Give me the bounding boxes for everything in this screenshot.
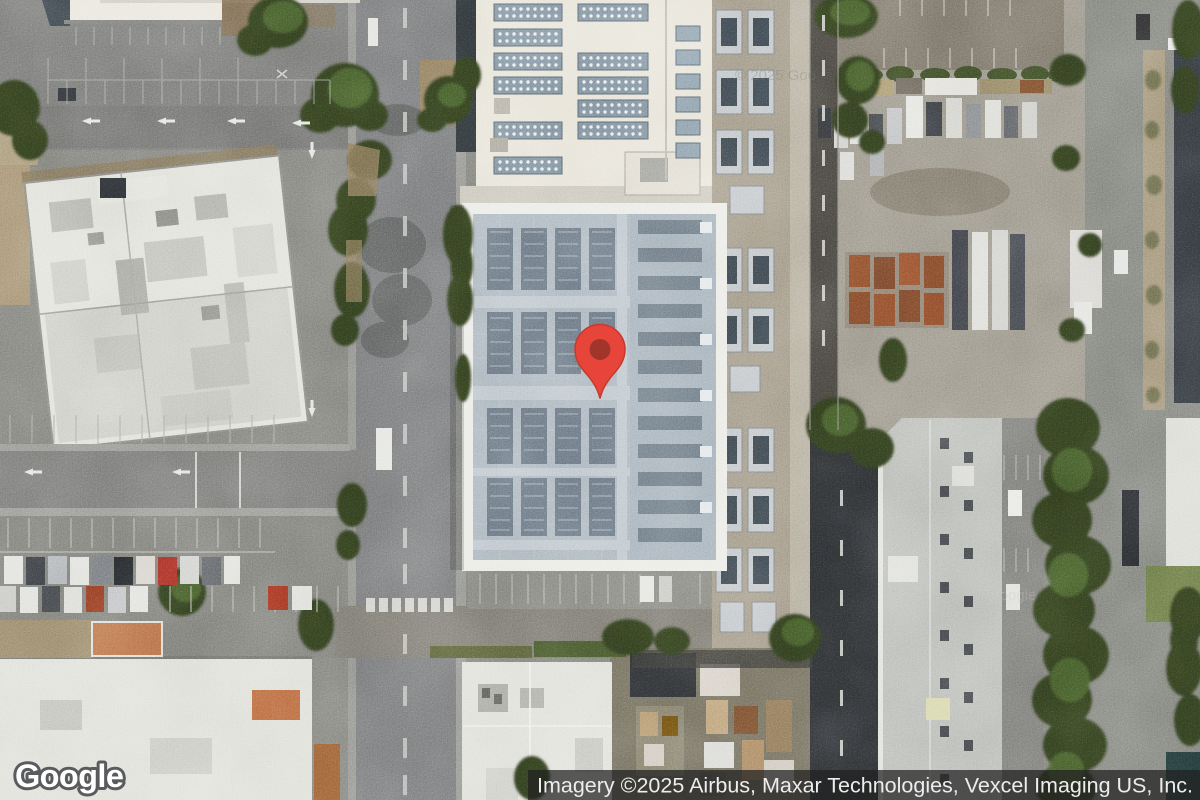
svg-text:Google: Google <box>15 758 123 794</box>
svg-text:© 2025 Goo: © 2025 Goo <box>735 67 816 84</box>
svg-text:Google: Google <box>988 587 1036 604</box>
svg-text:Imagery ©2025 Airbus, Maxar Te: Imagery ©2025 Airbus, Maxar Technologies… <box>537 774 1193 798</box>
